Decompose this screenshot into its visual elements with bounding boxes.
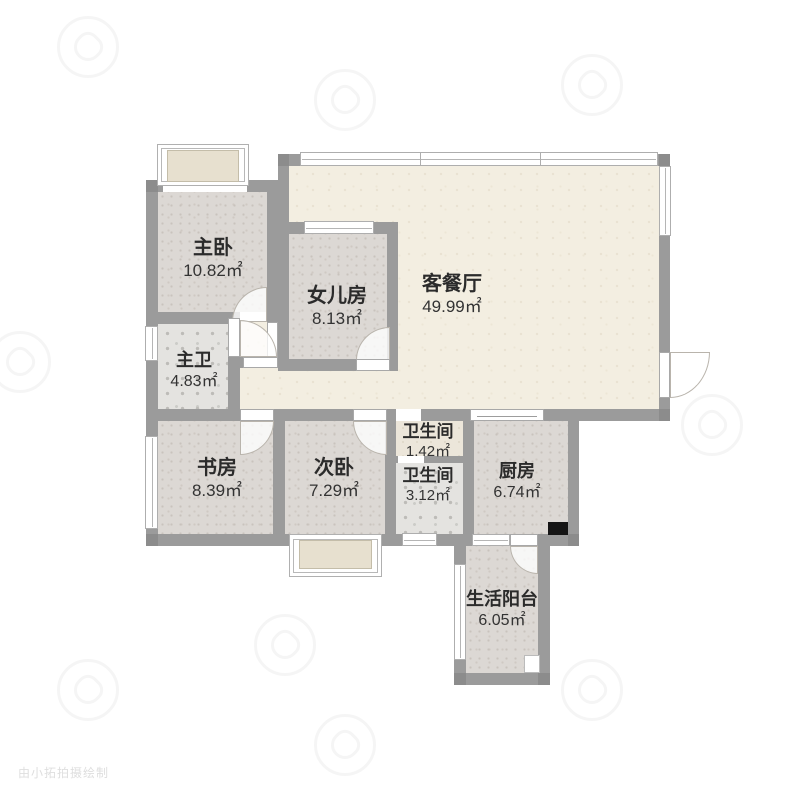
room-area: 7.29㎡	[309, 480, 359, 502]
wall-living-left	[278, 154, 289, 371]
room-name: 女儿房	[307, 284, 367, 308]
room-area: 3.12㎡	[403, 486, 454, 506]
bay-window-master-sill	[167, 150, 239, 182]
window-bathroom-bottom	[402, 533, 437, 546]
room-label-master-bath: 主卫 4.83㎡	[170, 350, 217, 392]
door-entry	[659, 352, 670, 398]
door-kitchen-sliding	[470, 409, 544, 421]
room-label-living-dining: 客餐厅 49.99㎡	[422, 272, 482, 318]
room-label-master-bedroom: 主卧 10.82㎡	[183, 236, 243, 282]
door-study	[240, 409, 274, 421]
room-area: 8.13㎡	[307, 308, 367, 330]
window-living-top	[300, 152, 658, 166]
wall-corner	[659, 409, 670, 421]
room-name: 卫生间	[403, 466, 454, 486]
watermark-logo	[0, 331, 51, 393]
watermark-logo	[681, 394, 743, 456]
window-study-left	[145, 436, 158, 529]
wall-balcony-bottom	[454, 673, 550, 685]
room-name: 卫生间	[403, 422, 454, 442]
bay-window-second-sill	[299, 540, 372, 569]
watermark-credit: 由小拓拍摄绘制	[18, 764, 109, 781]
wall-corner	[454, 673, 466, 685]
room-name: 客餐厅	[422, 272, 482, 296]
door-opening-bathroom-small	[396, 409, 421, 421]
window-daughter-top	[304, 221, 374, 234]
room-name: 生活阳台	[466, 589, 538, 611]
room-name: 次卧	[309, 456, 359, 480]
wall-study-divider	[273, 409, 285, 546]
wall-corner	[568, 534, 579, 546]
window-living-right	[659, 166, 671, 236]
wall-corner	[146, 534, 158, 546]
room-area: 10.82㎡	[183, 260, 243, 282]
window-balcony-left	[454, 564, 466, 660]
watermark-logo	[314, 714, 376, 776]
room-area: 6.74㎡	[493, 483, 540, 504]
kitchen-flue	[548, 522, 568, 535]
room-name: 主卧	[183, 236, 243, 260]
watermark-logo	[254, 614, 316, 676]
room-label-kitchen: 厨房 6.74㎡	[493, 461, 540, 503]
door-hallway	[243, 357, 278, 368]
window-mullion	[420, 152, 421, 166]
room-label-bathroom-small: 卫生间 1.42㎡	[403, 422, 454, 462]
room-area: 6.05㎡	[466, 611, 538, 632]
door-daughter-room	[356, 359, 390, 371]
room-area: 8.39㎡	[192, 480, 242, 502]
room-label-daughter-room: 女儿房 8.13㎡	[307, 284, 367, 330]
watermark-logo	[314, 69, 376, 131]
wall-corner	[278, 154, 289, 166]
watermark-logo	[57, 659, 119, 721]
balcony-drain-box	[524, 655, 540, 673]
room-label-bathroom-main: 卫生间 3.12㎡	[403, 466, 454, 506]
door-arc-entry	[670, 352, 710, 398]
watermark-logo	[561, 54, 623, 116]
room-area: 1.42㎡	[403, 442, 454, 462]
door-second-bedroom	[353, 409, 387, 421]
door-balcony	[510, 534, 538, 546]
floor-plan: 主卧 10.82㎡ 女儿房 8.13㎡ 客餐厅 49.99㎡ 主卫 4.83㎡ …	[0, 0, 800, 800]
window-kitchen-balcony-panel	[472, 534, 510, 546]
room-name: 书房	[192, 456, 242, 480]
wall-kitchen-left	[463, 409, 474, 546]
door-master-bath	[228, 318, 240, 357]
wall-kitchen-right	[568, 409, 579, 546]
room-label-second-bedroom: 次卧 7.29㎡	[309, 456, 359, 502]
room-label-service-balcony: 生活阳台 6.05㎡	[466, 589, 538, 631]
watermark-logo	[561, 659, 623, 721]
window-master-bath-left	[145, 326, 158, 361]
watermark-logo	[57, 16, 119, 78]
room-name: 厨房	[493, 461, 540, 483]
window-mullion	[540, 152, 541, 166]
room-area: 49.99㎡	[422, 296, 482, 318]
room-name: 主卫	[170, 350, 217, 372]
wall-master-bath-divider	[146, 312, 240, 324]
wall-corner	[538, 673, 550, 685]
wall-master-right	[267, 180, 278, 322]
room-area: 4.83㎡	[170, 372, 217, 393]
room-label-study: 书房 8.39㎡	[192, 456, 242, 502]
